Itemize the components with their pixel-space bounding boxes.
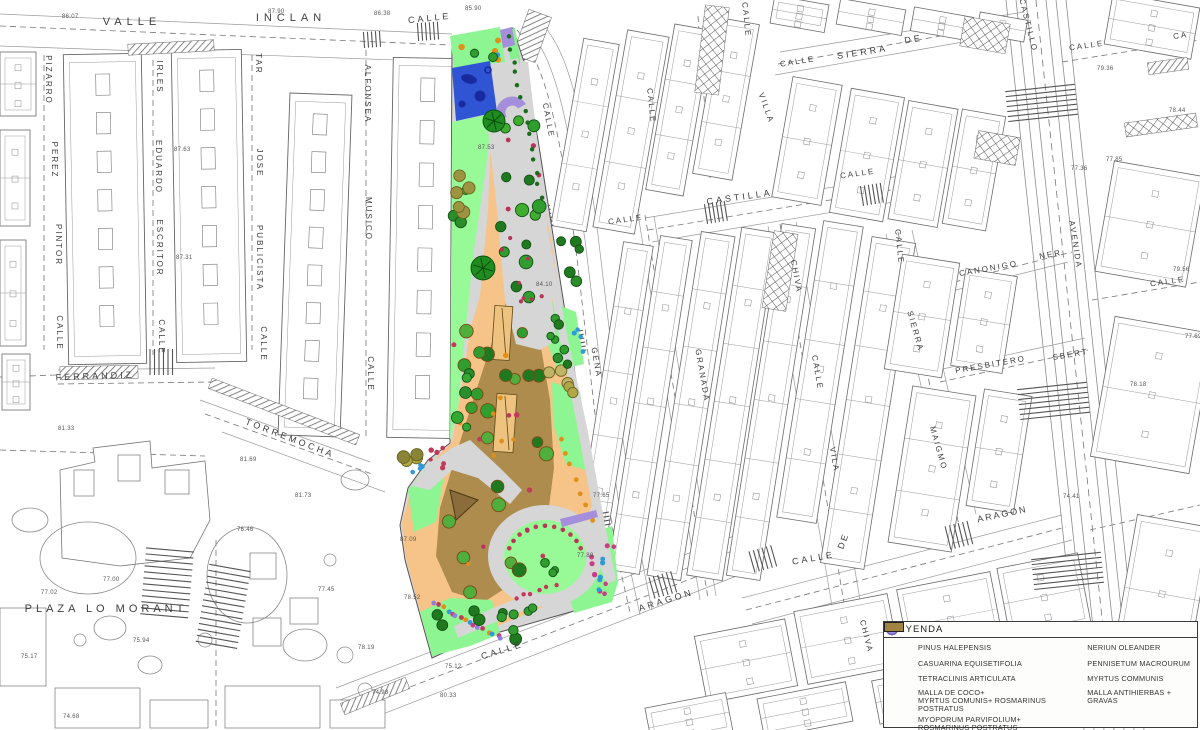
- street-label: SBERT: [1052, 347, 1090, 362]
- tree-icon: [474, 347, 486, 359]
- elevation-label: 77.02: [41, 590, 58, 596]
- stripe: [204, 594, 245, 601]
- tree-icon: [597, 577, 602, 582]
- tree-icon: [500, 369, 512, 381]
- tree-icon: [578, 334, 583, 339]
- street-label: CALLE: [157, 319, 166, 354]
- tree-icon: [503, 353, 509, 359]
- tree-icon: [530, 147, 534, 151]
- tree-icon: [458, 44, 464, 50]
- tree-icon: [602, 591, 607, 596]
- tree-icon: [463, 423, 471, 431]
- tree-icon: [457, 551, 470, 564]
- tree-icon: [460, 324, 474, 338]
- tree-icon: [451, 412, 463, 424]
- building-block: [836, 0, 906, 36]
- plaza-building: [150, 700, 208, 728]
- pond-outline: [138, 656, 162, 674]
- tree-icon: [463, 182, 475, 194]
- street-label: ALFONSEA: [363, 65, 372, 124]
- tree-icon: [491, 411, 495, 415]
- tree-icon: [463, 617, 468, 622]
- tree-icon: [507, 34, 511, 38]
- lawn-circle: [504, 520, 586, 594]
- tree-icon: [434, 450, 439, 455]
- tree-icon: [397, 451, 410, 464]
- street-label: SIERRA: [836, 43, 888, 61]
- plaza-building: [74, 470, 94, 496]
- legend-item-label: MALLA DE COCO+MYRTUS COMUNIS+ ROSMARINUS…: [918, 689, 1063, 713]
- street-label: PUBLICISTA: [255, 225, 264, 291]
- tree-icon: [499, 439, 504, 444]
- tree-icon: [464, 586, 477, 599]
- plaza-building: [55, 688, 140, 728]
- building-block: [2, 354, 30, 410]
- tree-icon: [436, 602, 441, 607]
- tree-icon: [466, 562, 470, 566]
- building-outline: [171, 49, 246, 362]
- street-label: FERRANDIZ: [55, 370, 134, 383]
- tree-icon: [466, 402, 477, 413]
- tree-icon: [527, 487, 532, 492]
- tree-icon: [500, 248, 504, 252]
- building-block: [966, 389, 1032, 513]
- tree-icon: [459, 615, 464, 620]
- stripe: [379, 31, 380, 47]
- tree-icon: [490, 632, 495, 637]
- building-outline: [645, 693, 733, 730]
- legend-item: MALLA ANTIHIERBAS + GRAVAS: [1063, 689, 1191, 705]
- tree-icon: [513, 69, 517, 73]
- tree-icon: [600, 560, 605, 565]
- tree-icon: [549, 569, 557, 577]
- legend-item-label: CASUARINA EQUISETIFOLIA: [918, 660, 1022, 668]
- tree-icon: [534, 525, 539, 530]
- tree-icon: [547, 332, 554, 339]
- stripe: [143, 584, 191, 588]
- tree-icon: [528, 604, 536, 612]
- plan-canvas: VALLEINCLANCALLEPIZARROPEREZPINTORCALLEI…: [0, 0, 1200, 730]
- elevation-label: 77.80: [577, 553, 594, 559]
- street-label: PLAZA LO MORANT: [25, 603, 188, 615]
- plaza-building: [290, 598, 318, 624]
- tree-icon: [515, 203, 528, 216]
- tree-icon: [517, 328, 527, 338]
- tree-icon: [544, 367, 555, 378]
- tree-icon: [498, 395, 503, 400]
- tree-icon: [563, 360, 571, 368]
- stripe: [417, 23, 418, 41]
- street-label: VALLE: [103, 16, 161, 28]
- tree-icon: [521, 592, 525, 596]
- tree-icon: [518, 95, 522, 99]
- tree-icon: [524, 175, 534, 185]
- building-block: [770, 0, 829, 33]
- crosswalk: [363, 31, 380, 48]
- tree-icon: [568, 387, 578, 397]
- legend-title: LEYENDA: [884, 622, 1197, 638]
- tree-icon: [559, 437, 564, 442]
- tree-icon: [512, 60, 516, 64]
- plaza-building: [253, 618, 281, 646]
- elevation-label: 85.90: [465, 6, 482, 12]
- tree-icon: [519, 299, 523, 303]
- street-label: CALLE: [1069, 39, 1105, 53]
- legend-item: PENNISETUM MACROURUM: [1063, 658, 1191, 670]
- building-block: [63, 53, 146, 364]
- legend-column-left: PINUS HALEPENSISCASUARINA EQUISETIFOLIAT…: [894, 642, 1063, 730]
- tree-icon: [517, 532, 522, 537]
- legend-item-label: MYOPORUM PARVIFOLIUM+ ROSMARINUS POSTRAT…: [918, 716, 1063, 730]
- tree-icon: [514, 412, 520, 418]
- tree-icon: [544, 585, 548, 589]
- stripe: [963, 522, 969, 545]
- tree-icon: [530, 297, 534, 301]
- tree-icon: [491, 480, 504, 493]
- tree-icon: [578, 491, 583, 496]
- tree-icon: [471, 388, 483, 400]
- elevation-label: 79.56: [1173, 267, 1190, 273]
- tree-icon: [509, 625, 518, 634]
- elevation-label: 74.68: [63, 714, 80, 720]
- tree-icon: [495, 38, 501, 44]
- tree-icon: [525, 528, 530, 533]
- tree-icon: [452, 613, 457, 618]
- legend-item: PINUS HALEPENSIS: [894, 642, 1063, 654]
- tree-icon: [560, 345, 569, 354]
- stripe: [375, 31, 376, 47]
- street-label: ESCRITOR: [155, 219, 164, 276]
- stripe: [704, 204, 707, 224]
- stripe: [958, 523, 964, 546]
- elevation-label: 74.41: [1063, 494, 1080, 500]
- street-centerline: [58, 382, 212, 384]
- legend-item: TETRACLINIS ARTICULATA: [894, 673, 1063, 685]
- elevation-label: 75.12: [445, 664, 462, 670]
- plaza-building: [118, 455, 140, 481]
- tree-icon: [420, 464, 425, 469]
- tree-icon: [525, 120, 529, 124]
- plaza-building: [250, 553, 276, 579]
- elevation-label: 78.18: [1130, 382, 1147, 388]
- tree-icon: [481, 545, 485, 549]
- tree-icon: [451, 187, 463, 199]
- tree-icon: [492, 454, 496, 458]
- stripe: [437, 22, 438, 40]
- street-label: MUSICO: [364, 197, 373, 241]
- tree-icon: [535, 182, 539, 186]
- stripe: [203, 600, 244, 607]
- pond-outline: [12, 508, 48, 532]
- stripe: [143, 578, 191, 582]
- tree-icon: [563, 451, 568, 456]
- tree-icon: [581, 349, 586, 354]
- tree-icon: [496, 221, 506, 231]
- tree-icon: [572, 331, 577, 336]
- plaza-tree: [324, 554, 336, 566]
- elevation-label: 78.19: [358, 645, 375, 651]
- stripe: [429, 22, 430, 40]
- tree-icon: [603, 582, 608, 587]
- street-label: EDUARDO: [154, 140, 163, 194]
- elevation-label: 87.31: [176, 255, 193, 261]
- building-block: [171, 49, 246, 362]
- tree-icon: [428, 447, 433, 452]
- building-block: [278, 93, 352, 437]
- stripe: [208, 570, 249, 577]
- street-label: GENA: [589, 347, 603, 379]
- tree-icon: [515, 83, 519, 87]
- stripe: [144, 572, 192, 576]
- building-outline: [888, 386, 976, 552]
- tree-icon: [537, 588, 541, 592]
- elevation-label: 81.69: [240, 457, 257, 463]
- tree-icon: [511, 539, 516, 544]
- street-label: INCLAN: [256, 12, 326, 24]
- legend-item: MALLA DE COCO+MYRTUS COMUNIS+ ROSMARINUS…: [894, 689, 1063, 713]
- tree-icon: [574, 477, 579, 482]
- elevation-label: 77.69: [1185, 334, 1200, 340]
- tree-icon: [574, 539, 579, 544]
- building-block: [0, 130, 30, 226]
- tree-icon: [477, 437, 482, 442]
- tree-icon: [564, 267, 575, 278]
- tree-icon: [507, 546, 512, 551]
- tree-icon: [557, 237, 566, 246]
- elevation-label: 78.44: [1169, 108, 1186, 114]
- tree-icon: [539, 447, 553, 461]
- stripe: [363, 32, 364, 48]
- stripe: [197, 635, 238, 642]
- elevation-label: 86.38: [374, 11, 391, 17]
- tree-icon: [583, 502, 588, 507]
- tree-icon: [528, 120, 540, 132]
- street-label: NER: [1039, 248, 1063, 261]
- tree-icon: [532, 437, 543, 448]
- legend-item: CASUARINA EQUISETIFOLIA: [894, 658, 1063, 670]
- tree-icon: [575, 245, 583, 253]
- plaza-tree: [337, 647, 353, 663]
- tree-icon: [432, 610, 442, 620]
- pond-outline: [94, 616, 126, 640]
- tree-icon: [567, 462, 572, 467]
- elevation-label: 76.46: [237, 527, 254, 533]
- tree-icon: [511, 437, 515, 441]
- tree-icon: [596, 587, 601, 592]
- street-label: TAR: [254, 53, 263, 74]
- street-label: JOSE: [255, 149, 264, 178]
- street-label: VILLA: [757, 92, 776, 125]
- tree-icon: [512, 563, 526, 577]
- tree-icon: [481, 432, 493, 444]
- tree-icon: [506, 138, 511, 143]
- elevation-label: 84.10: [536, 282, 553, 288]
- legend-item-label: TETRACLINIS ARTICULATA: [918, 675, 1016, 683]
- tree-icon: [440, 446, 445, 451]
- elevation-label: 81.33: [58, 426, 75, 432]
- street-label: CALLE: [779, 54, 815, 68]
- street-label: CALLE: [366, 356, 375, 391]
- tree-icon: [441, 604, 446, 609]
- tree-icon: [502, 172, 511, 181]
- tree-icon: [440, 465, 445, 470]
- street-label: AVENIDA: [1067, 220, 1083, 269]
- tree-icon: [509, 610, 518, 619]
- tree-icon: [514, 116, 524, 126]
- street-label: PEREZ: [50, 142, 59, 179]
- stripe: [142, 590, 190, 594]
- stripe: [207, 576, 248, 583]
- elevation-label: 77.85: [1106, 157, 1123, 163]
- tree-icon: [531, 157, 535, 161]
- tree-icon: [543, 524, 548, 529]
- building-outline: [1090, 316, 1200, 473]
- hatch-area: [1124, 113, 1197, 137]
- tree-icon: [489, 53, 498, 62]
- stripe: [196, 641, 237, 648]
- tree-icon: [519, 255, 533, 269]
- elevation-label: 77.00: [103, 577, 120, 583]
- tree-icon: [592, 572, 597, 577]
- tree-icon: [541, 558, 550, 567]
- tree-icon: [473, 614, 485, 626]
- tree-icon: [451, 342, 456, 347]
- street-label: CALLE: [480, 639, 525, 661]
- elevation-label: 87.90: [268, 9, 285, 15]
- street-label: CALLE: [259, 326, 268, 361]
- tree-icon: [498, 636, 503, 641]
- tree-icon: [540, 554, 545, 559]
- tree-icon: [453, 201, 464, 212]
- legend-item-label: NERIUN OLEANDER: [1087, 644, 1160, 652]
- tree-icon: [437, 620, 448, 631]
- pond-outline: [341, 470, 369, 490]
- street-label: DE: [904, 33, 924, 46]
- tree-icon: [575, 327, 579, 331]
- stripe: [367, 32, 368, 48]
- tree-icon: [517, 281, 521, 285]
- tree-icon: [429, 457, 433, 461]
- street-label: PIZARRO: [44, 55, 53, 105]
- legend-item-label: PINUS HALEPENSIS: [918, 644, 991, 652]
- tree-icon: [497, 612, 506, 621]
- elevation-label: 75.94: [133, 638, 150, 644]
- tree-icon: [470, 49, 478, 57]
- legend-columns: PINUS HALEPENSISCASUARINA EQUISETIFOLIAT…: [884, 638, 1197, 730]
- elevation-label: 74.98: [372, 690, 389, 696]
- stripe: [425, 22, 426, 40]
- tree-icon: [507, 413, 512, 418]
- legend-item: NERIUN OLEANDER: [1063, 642, 1191, 654]
- tree-icon: [524, 109, 528, 113]
- plaza-tree: [198, 633, 212, 647]
- tree-icon: [526, 257, 530, 261]
- street-label: ARAGON: [637, 587, 694, 613]
- stripe: [209, 564, 250, 571]
- stripe: [421, 23, 422, 41]
- stripe: [205, 588, 246, 595]
- street-label: CALLE: [541, 102, 557, 138]
- elevation-label: 81.73: [295, 493, 312, 499]
- plaza-tree: [74, 634, 86, 646]
- stripe: [433, 22, 434, 40]
- tree-icon: [554, 583, 558, 587]
- tree-icon: [554, 320, 564, 330]
- tree-icon: [460, 387, 472, 399]
- tree-icon: [568, 532, 573, 537]
- tree-icon: [410, 470, 415, 475]
- elevation-label: 77.36: [1071, 166, 1088, 172]
- tree-icon: [605, 543, 610, 548]
- legend-item: MYOPORUM PARVIFOLIUM+ ROSMARINUS POSTRAT…: [894, 716, 1063, 730]
- tree-icon: [571, 276, 582, 287]
- building-block: [1090, 316, 1200, 473]
- elevation-label: 77.65: [593, 493, 610, 499]
- tree-icon: [411, 449, 423, 461]
- tree-icon: [590, 518, 595, 523]
- stripe: [142, 596, 190, 600]
- tree-icon: [540, 196, 544, 200]
- tree-icon: [508, 47, 512, 51]
- tree-icon: [523, 370, 535, 382]
- street-label: PINTOR: [54, 224, 63, 266]
- building-block: [0, 240, 26, 346]
- tree-icon: [522, 296, 526, 300]
- tree-icon: [589, 561, 594, 566]
- elevation-label: 87.63: [174, 147, 191, 153]
- elevation-label: 87.09: [400, 537, 417, 543]
- pond-outline: [283, 629, 327, 661]
- elevation-label: 75.17: [21, 654, 38, 660]
- elevation-label: 80.33: [440, 693, 457, 699]
- building-block: [645, 693, 733, 730]
- tree-icon: [462, 373, 471, 382]
- tree-icon: [535, 171, 539, 175]
- legend-item: MYRTUS COMMUNIS: [1063, 673, 1191, 685]
- legend-item-label: MALLA ANTIHIERBAS + GRAVAS: [1087, 689, 1191, 705]
- elevation-label: 79.36: [1097, 66, 1114, 72]
- parking-comb: [196, 564, 251, 648]
- elevation-label: 87.53: [478, 145, 495, 151]
- legend-item-label: MYRTUS COMMUNIS: [1087, 675, 1163, 683]
- elevation-label: 77.45: [318, 587, 335, 593]
- tree-icon: [532, 200, 546, 214]
- tree-icon: [561, 528, 566, 533]
- plaza-building: [225, 686, 320, 728]
- crosswalk: [417, 22, 438, 41]
- plaza-building: [0, 608, 46, 686]
- tree-icon: [540, 294, 544, 298]
- tree-icon: [527, 132, 531, 136]
- tree-icon: [514, 596, 518, 600]
- street-centerline: [0, 26, 450, 45]
- elevation-label: 78.52: [404, 595, 421, 601]
- street-label: CASTILLA: [706, 187, 773, 206]
- stripe: [145, 566, 193, 570]
- elevation-label: 86.07: [62, 14, 79, 20]
- stripe: [371, 31, 372, 47]
- street-label: CALLE: [55, 315, 64, 350]
- tree-icon: [611, 544, 616, 549]
- stripe: [202, 606, 243, 613]
- legend-column-right: NERIUN OLEANDERPENNISETUM MACROURUMMYRTU…: [1063, 642, 1191, 730]
- building-block: [0, 52, 36, 116]
- tree-icon: [522, 240, 531, 249]
- plaza-building: [165, 470, 189, 494]
- legend-panel: LEYENDA PINUS HALEPENSISCASUARINA EQUISE…: [883, 621, 1198, 728]
- building-block: [694, 619, 797, 703]
- hatch-area: [1147, 57, 1188, 74]
